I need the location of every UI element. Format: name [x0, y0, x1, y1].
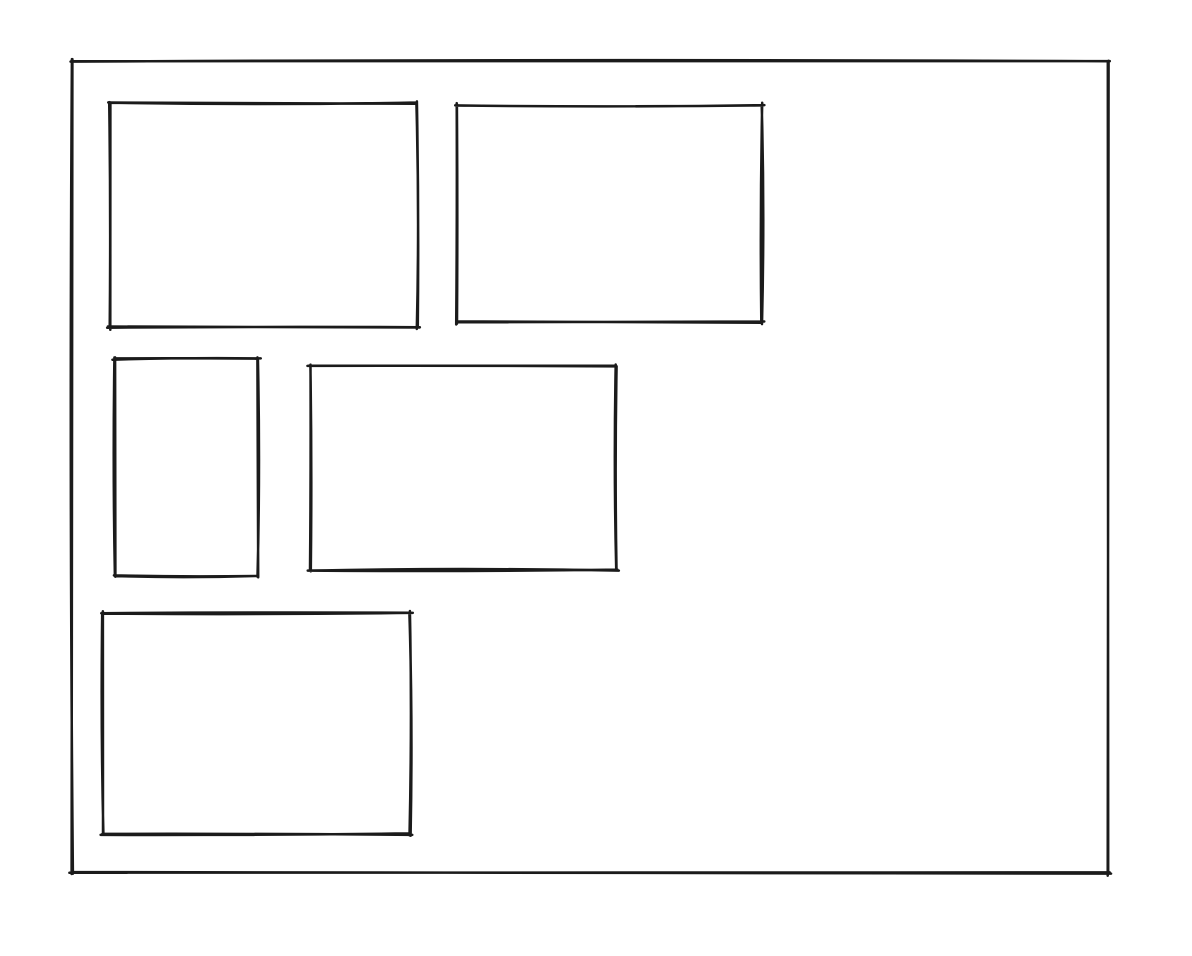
outer-frame: [69, 59, 1111, 876]
panel-top-left: [107, 101, 420, 329]
wireframe-sketch: [0, 0, 1192, 956]
panel-middle-left: [112, 357, 260, 577]
panel-top-right: [455, 103, 764, 325]
sketch-canvas: [0, 0, 1192, 956]
panel-bottom-left: [101, 611, 413, 836]
panel-middle-center: [307, 365, 619, 572]
